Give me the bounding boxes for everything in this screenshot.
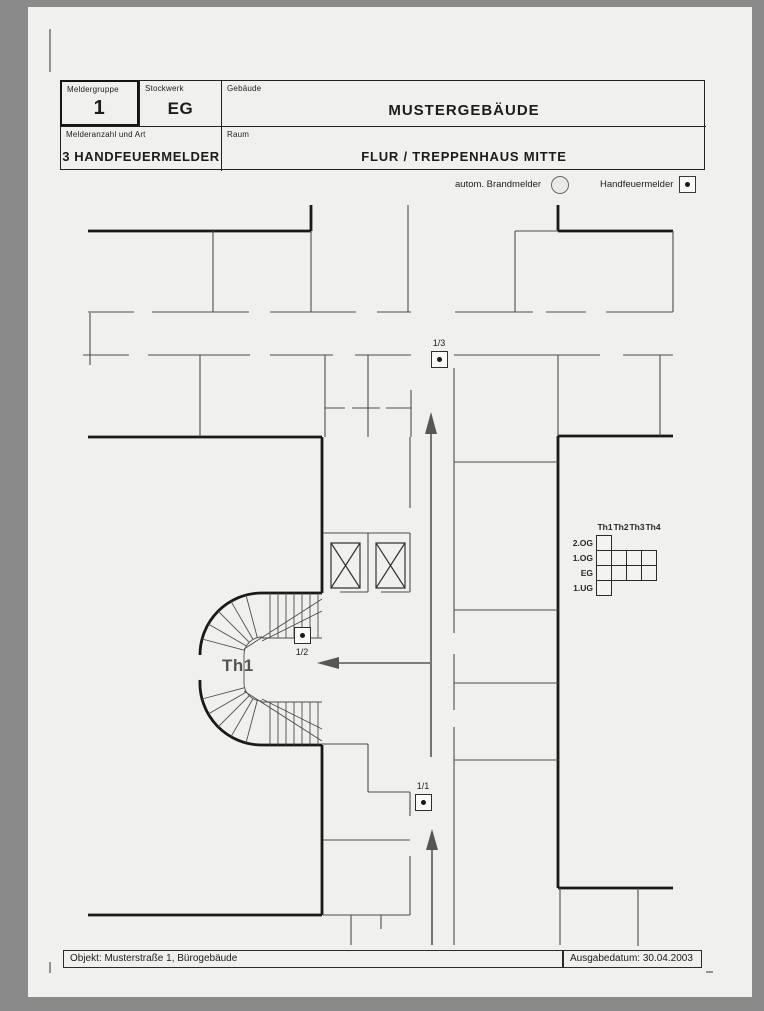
field-label: Melderanzahl und Art	[66, 130, 146, 139]
manual-detector-icon	[431, 351, 448, 368]
matrix-cell	[596, 535, 612, 551]
detector-dot	[685, 182, 690, 187]
floor-matrix: Th1Th2Th3Th4 2.OG1.OGEG1.UG	[562, 522, 661, 596]
matrix-cell	[626, 550, 642, 566]
matrix-row-label: 1.UG	[562, 580, 597, 596]
matrix-column-th2: Th2	[613, 522, 629, 536]
matrix-cell	[641, 565, 657, 581]
matrix-cell	[596, 580, 612, 596]
footer-date-label: Ausgabedatum: 30.04.2003	[563, 950, 702, 968]
arrow-shafts	[339, 433, 432, 945]
field-value: 3 HANDFEUERMELDER	[61, 149, 221, 164]
scanned-fire-alarm-plan-page: { "title_block": { "fields": [ { "label"…	[0, 0, 764, 1011]
matrix-row-1.og: 1.OG	[562, 550, 661, 566]
detector-label: 1/2	[282, 647, 322, 657]
spiral-stairs	[202, 593, 322, 745]
arrow-left-head	[317, 657, 339, 669]
detector-dot	[421, 800, 426, 805]
field-label: Raum	[227, 130, 249, 139]
detector-label: 1/3	[419, 338, 459, 348]
matrix-row-label: 2.OG	[562, 535, 597, 551]
title-block: Meldergruppe 1 Stockwerk EG Gebäude MUST…	[60, 80, 705, 170]
matrix-cell	[596, 550, 612, 566]
matrix-cell	[641, 550, 657, 566]
matrix-column-th3: Th3	[629, 522, 645, 536]
manual-detector-icon	[415, 794, 432, 811]
matrix-cell	[596, 565, 612, 581]
matrix-cell	[626, 565, 642, 581]
floor-matrix-header: Th1Th2Th3Th4	[597, 522, 661, 536]
title-cell-stockwerk: Stockwerk EG	[139, 81, 221, 126]
field-value: FLUR / TREPPENHAUS MITTE	[222, 149, 706, 164]
field-value: 1	[62, 97, 137, 120]
stairwell-label: Th1	[222, 656, 254, 676]
matrix-cell	[611, 550, 627, 566]
matrix-row-1.ug: 1.UG	[562, 580, 661, 596]
field-label: Meldergruppe	[67, 85, 119, 94]
field-label: Gebäude	[227, 84, 261, 93]
title-cell-meldergruppe: Meldergruppe 1	[60, 80, 139, 126]
matrix-row-eg: EG	[562, 565, 661, 581]
detector-label: 1/1	[403, 781, 443, 791]
footer-object-label: Objekt: Musterstraße 1, Bürogebäude	[63, 950, 563, 968]
title-cell-melderanzahl: Melderanzahl und Art 3 HANDFEUERMELDER	[61, 126, 221, 171]
field-value: EG	[140, 99, 221, 119]
field-label: Stockwerk	[145, 84, 184, 93]
floor-matrix-body: 2.OG1.OGEG1.UG	[562, 535, 661, 596]
detector-dot	[437, 357, 442, 362]
legend-auto-detector-label: autom. Brandmelder	[455, 176, 541, 194]
plan-page: Meldergruppe 1 Stockwerk EG Gebäude MUST…	[28, 7, 752, 997]
arrow-up-long-head	[425, 412, 437, 434]
legend-manual-detector-label: Handfeuermelder	[600, 176, 673, 194]
matrix-row-label: EG	[562, 565, 597, 581]
matrix-column-th4: Th4	[645, 522, 661, 536]
manual-detector-icon	[679, 176, 696, 193]
title-cell-raum: Raum FLUR / TREPPENHAUS MITTE	[221, 126, 706, 171]
matrix-row-label: 1.OG	[562, 550, 597, 566]
title-cell-gebaeude: Gebäude MUSTERGEBÄUDE	[221, 81, 706, 126]
matrix-column-th1: Th1	[597, 522, 613, 536]
auto-detector-icon	[551, 176, 569, 194]
arrow-up-short-head	[426, 829, 438, 850]
detector-dot	[300, 633, 305, 638]
matrix-row-2.og: 2.OG	[562, 535, 661, 551]
manual-detector-icon	[294, 627, 311, 644]
matrix-cell	[611, 565, 627, 581]
escape-route-arrows	[317, 412, 438, 945]
field-value: MUSTERGEBÄUDE	[222, 102, 706, 119]
